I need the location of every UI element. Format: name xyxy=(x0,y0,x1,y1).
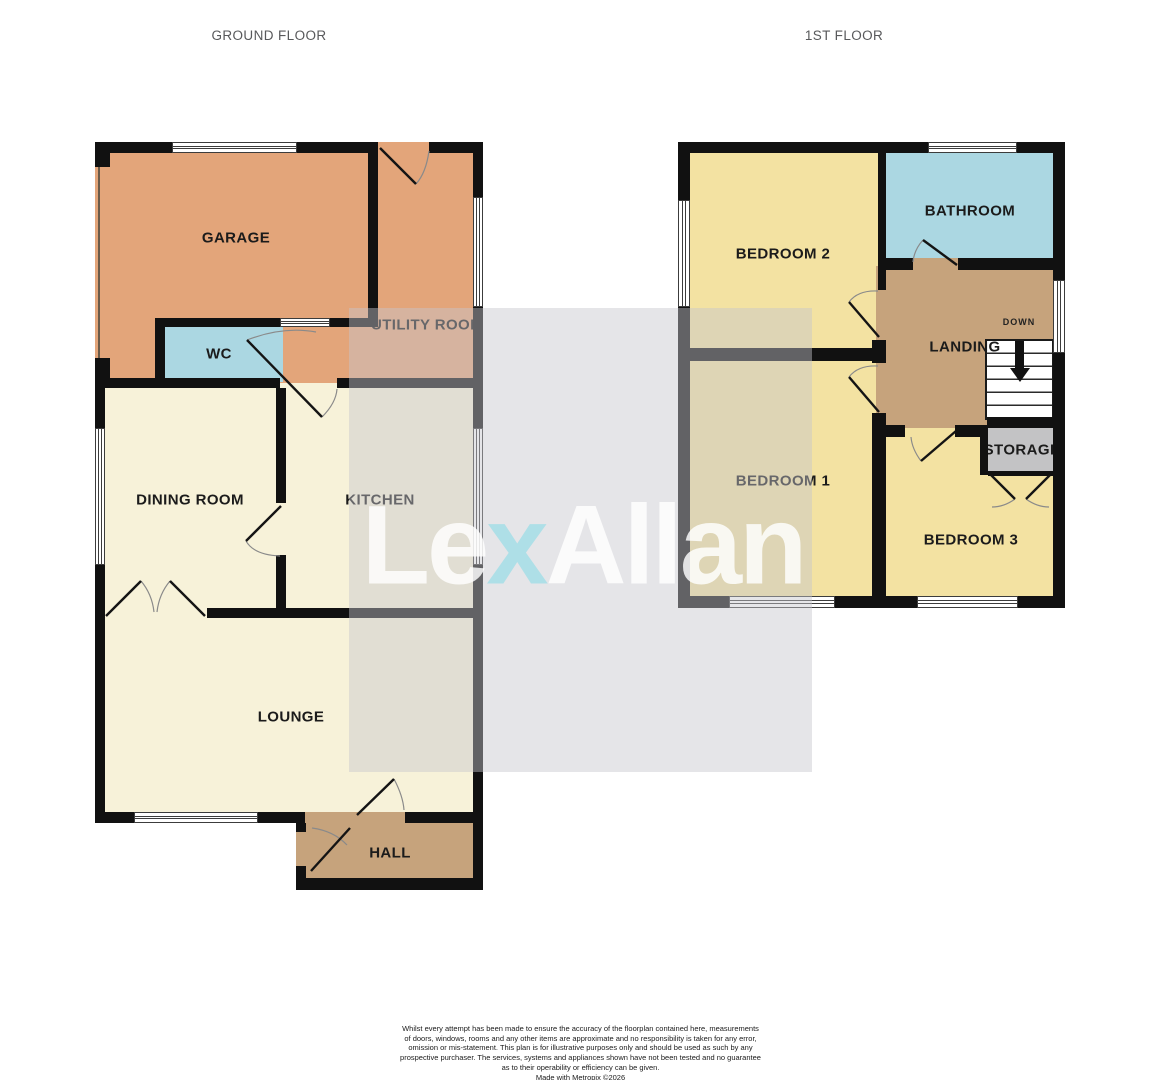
disclaimer-line: as to their operability or efficiency ca… xyxy=(0,1063,1161,1073)
disclaimer-credit: Made with Metropix ©2026 xyxy=(0,1073,1161,1080)
disclaimer-line: of doors, windows, rooms and any other i… xyxy=(0,1034,1161,1044)
disclaimer-line: Whilst every attempt has been made to en… xyxy=(0,1024,1161,1034)
floorplan-canvas: GROUND FLOOR 1ST FLOOR GARAGE UTILITY RO… xyxy=(0,0,1161,1080)
watermark-logo-allan: Allan xyxy=(546,483,805,608)
watermark-logo: LexAllan xyxy=(362,481,805,610)
disclaimer-line: omission or mis-statement. This plan is … xyxy=(0,1043,1161,1053)
disclaimer-text: Whilst every attempt has been made to en… xyxy=(0,1024,1161,1080)
watermark-logo-le: Le xyxy=(362,483,487,608)
disclaimer-line: prospective purchaser. The services, sys… xyxy=(0,1053,1161,1063)
watermark-logo-x: x xyxy=(486,483,545,608)
